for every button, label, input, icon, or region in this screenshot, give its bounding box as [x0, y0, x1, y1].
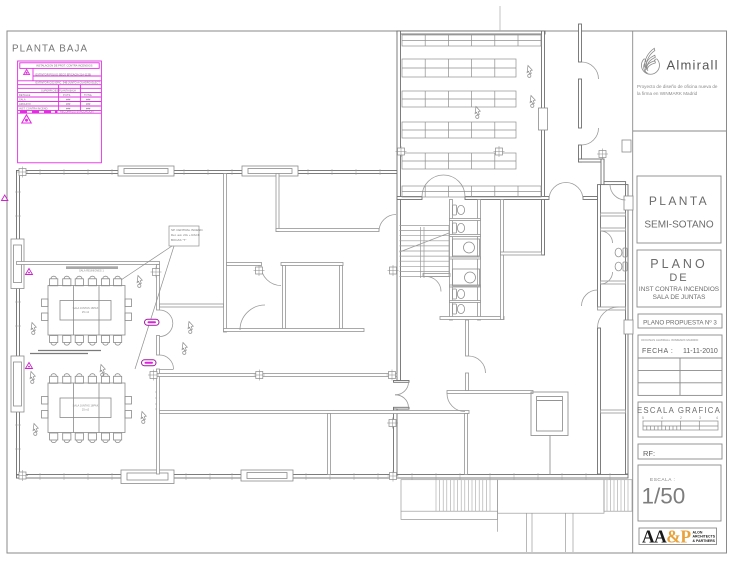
svg-text:5: 5	[642, 416, 644, 420]
svg-text:###: ###	[86, 102, 91, 106]
svg-text:Det. aut. 24v + RACK: Det. aut. 24v + RACK	[171, 233, 200, 237]
svg-text:ESCALA :: ESCALA :	[650, 477, 675, 483]
svg-text:INST CONTRA INCENDIOS: INST CONTRA INCENDIOS	[639, 286, 719, 293]
svg-text:RF:: RF:	[643, 449, 655, 458]
svg-text:PLANO: PLANO	[650, 257, 707, 271]
svg-text:DETALLE: DETALLE	[19, 93, 31, 97]
svg-text:###: ###	[86, 97, 91, 101]
svg-text:INSTALACION DE PROT. CONTRA IN: INSTALACION DE PROT. CONTRA INCENDIOS	[36, 64, 93, 68]
svg-text:BOCAS "T": BOCAS "T"	[171, 238, 186, 242]
svg-text:la firma en WINMARK Madrid: la firma en WINMARK Madrid	[637, 91, 698, 96]
svg-text:SALA JUNTAS 16PAX: SALA JUNTAS 16PAX	[73, 404, 99, 408]
svg-text:###: ###	[66, 97, 71, 101]
svg-text:11-11-2010: 11-11-2010	[683, 348, 718, 355]
svg-text:ARCHIVO: ARCHIVO	[19, 102, 31, 106]
svg-text:25 m2: 25 m2	[82, 310, 90, 314]
svg-text:Almirall: Almirall	[667, 57, 719, 72]
svg-text:SEMI-SOTANO: SEMI-SOTANO	[644, 220, 713, 231]
svg-text:EXTINTOR CO2 EFIC. 34B JUNTO A: EXTINTOR CO2 EFIC. 34B JUNTO A CUADRO EL…	[36, 80, 101, 84]
svg-text:& PARTNERS: & PARTNERS	[693, 539, 716, 543]
svg-text:SALA: SALA	[19, 97, 26, 101]
svg-text:1/50: 1/50	[642, 484, 686, 509]
svg-text:SALA REUNIONES 1: SALA REUNIONES 1	[79, 269, 104, 273]
svg-text:ESCALA GRAFICA: ESCALA GRAFICA	[637, 406, 721, 415]
svg-text:TOTAL: TOTAL	[84, 93, 93, 97]
svg-text:RECORRIDO EVACUACION: RECORRIDO EVACUACION	[60, 110, 94, 114]
svg-text:INST. CONTRA INCEND.: INST. CONTRA INCEND.	[19, 106, 49, 110]
svg-text:OFICINAS ALMIRALL WINMARK MADR: OFICINAS ALMIRALL WINMARK MADRID	[641, 338, 699, 342]
svg-text:AA&P: AA&P	[642, 526, 691, 546]
svg-text:4: 4	[661, 416, 663, 420]
svg-text:SALA DE JUNTAS: SALA DE JUNTAS	[653, 294, 706, 301]
svg-text:PLANO PROPUESTA Nº 3: PLANO PROPUESTA Nº 3	[643, 320, 717, 327]
svg-text:PLANTA BAJA: PLANTA BAJA	[12, 44, 88, 55]
svg-text:EXTINTOR POLVO SECO EFICACIA 2: EXTINTOR POLVO SECO EFICACIA 21A-113B	[36, 73, 91, 77]
svg-text:FECHA :: FECHA :	[642, 348, 673, 355]
svg-text:PLANTA: PLANTA	[649, 194, 709, 208]
svg-text:SP. CENTRAL INCEND.: SP. CENTRAL INCEND.	[171, 228, 204, 232]
svg-text:Proyecto de diseño de oficina: Proyecto de diseño de oficina nueva de	[637, 84, 718, 89]
svg-text:3: 3	[699, 416, 701, 420]
svg-text:###: ###	[66, 102, 71, 106]
svg-text:SALA JUNTAS 16PAX: SALA JUNTAS 16PAX	[73, 306, 99, 310]
svg-text:4: 4	[716, 416, 718, 420]
svg-text:DE: DE	[669, 272, 688, 284]
svg-text:25 m2: 25 m2	[82, 408, 90, 412]
svg-text:2: 2	[680, 416, 682, 420]
svg-text:P.UTIL: P.UTIL	[63, 93, 71, 97]
svg-text:SUPERFICIES PLANTA BAJA: SUPERFICIES PLANTA BAJA	[41, 88, 76, 92]
